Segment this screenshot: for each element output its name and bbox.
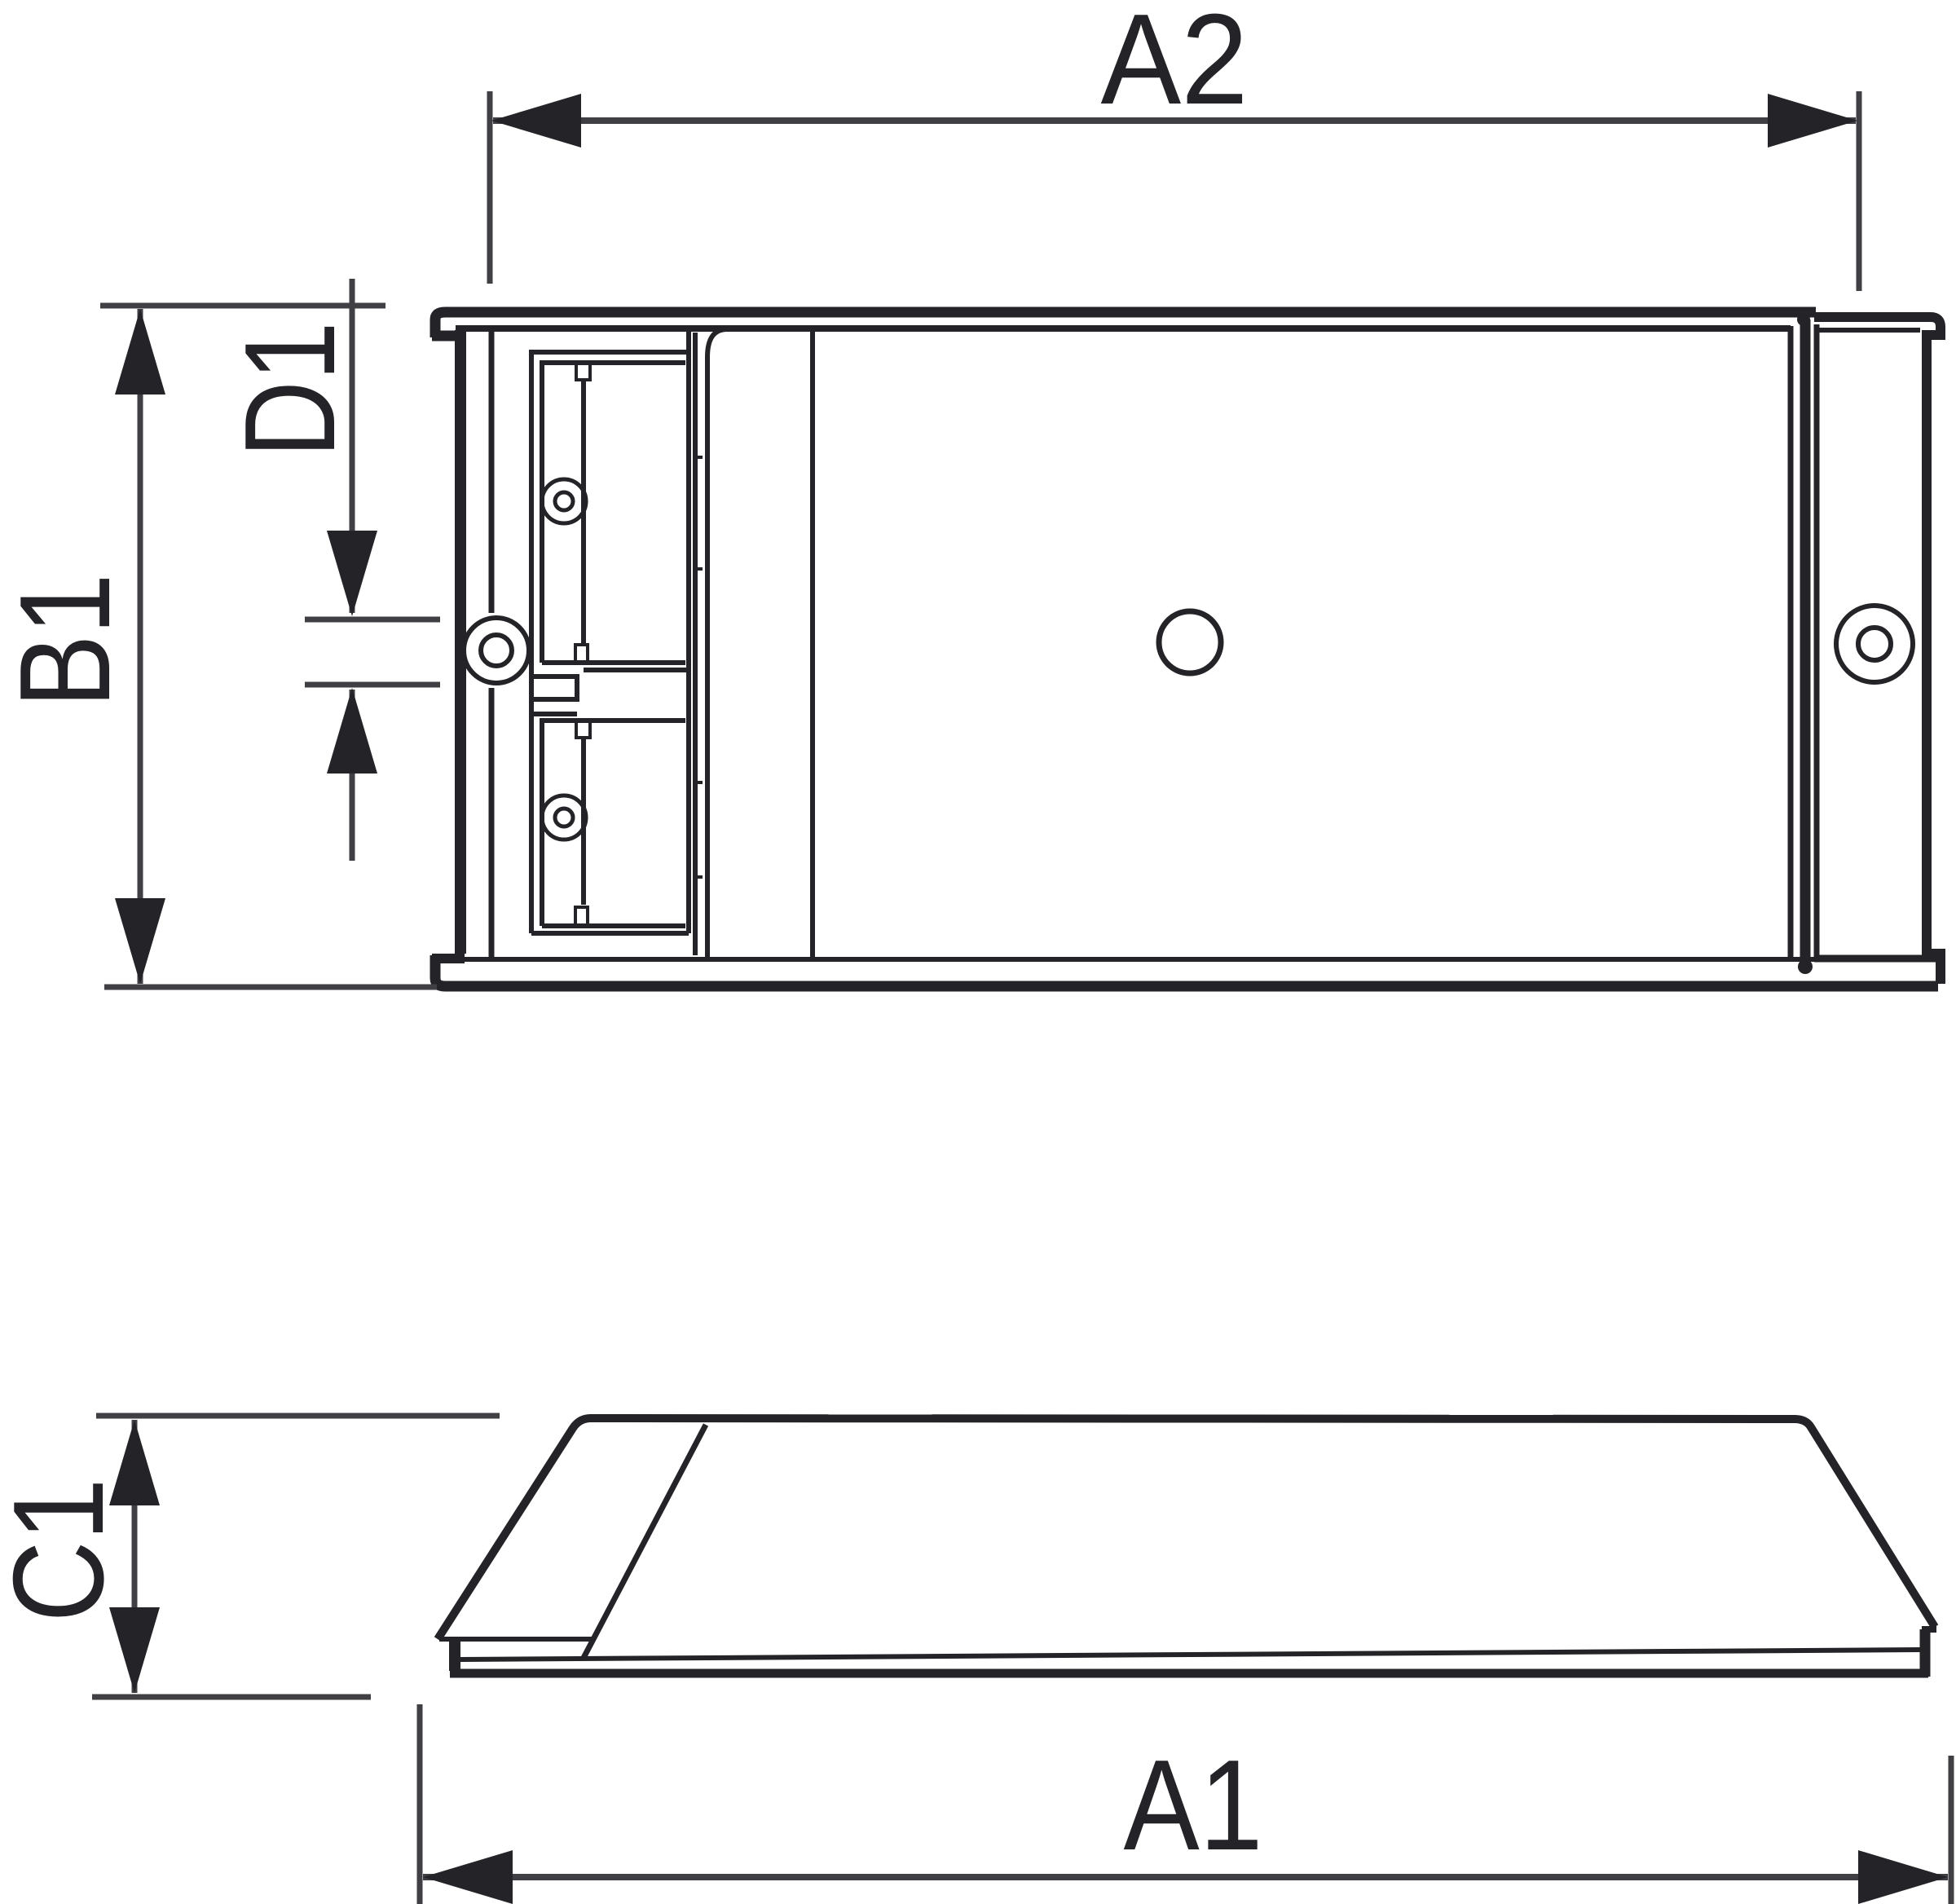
svg-text:A1: A1 — [1124, 1734, 1263, 1877]
svg-text:D1: D1 — [218, 322, 362, 458]
svg-text:C1: C1 — [0, 1479, 130, 1623]
svg-text:A2: A2 — [1101, 0, 1249, 131]
svg-text:B1: B1 — [0, 574, 137, 708]
